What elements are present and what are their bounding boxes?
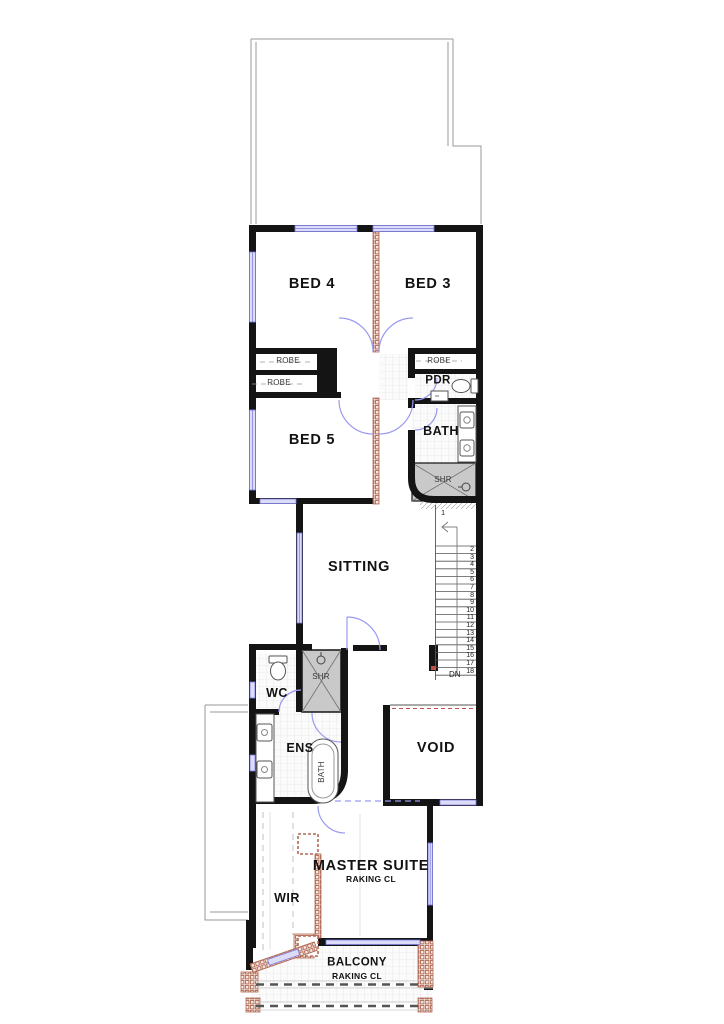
stair-step-label: 9 (452, 599, 474, 606)
room-label-shr-bath: SHR (434, 476, 452, 484)
label-master-raking-cl: RAKING CL (346, 875, 396, 884)
stair-step-1: 1 (441, 509, 445, 517)
room-label-bed4: BED 4 (289, 277, 335, 292)
stair-step-label: 11 (452, 614, 474, 621)
room-label-wir: WIR (274, 892, 300, 905)
stair-step-label: 5 (452, 569, 474, 576)
room-label-robe-c: ROBE (427, 357, 450, 365)
room-label-wc: WC (266, 687, 288, 700)
stair-step-label: 16 (452, 652, 474, 659)
stair-step-label: 3 (452, 554, 474, 561)
room-label-balcony: BALCONY (327, 957, 387, 969)
fixture-label-bath-tub: BATH (318, 761, 326, 783)
stair-step-label: 14 (452, 637, 474, 644)
label-balcony-raking-cl: RAKING CL (332, 972, 382, 981)
room-label-shr-ens: SHR (312, 673, 330, 681)
stair-step-label: 2 (452, 546, 474, 553)
room-label-robe-a: ROBE (276, 357, 299, 365)
stair-step-label: 8 (452, 592, 474, 599)
room-label-ens: ENS (286, 742, 313, 755)
room-label-bed3: BED 3 (405, 277, 451, 292)
floor-plan-page: BED 4 BED 3 ROBE ROBE ROBE PDR BED 5 BAT… (0, 0, 724, 1024)
stair-step-label: 10 (452, 607, 474, 614)
room-label-bed5: BED 5 (289, 433, 335, 448)
stair-down-label: DN (449, 671, 461, 679)
stair-step-label: 7 (452, 584, 474, 591)
room-label-sitting: SITTING (328, 560, 390, 575)
room-label-master-suite: MASTER SUITE (313, 859, 429, 874)
stair-step-label: 15 (452, 645, 474, 652)
stair-step-label: 12 (452, 622, 474, 629)
room-label-bath: BATH (423, 425, 459, 438)
room-label-pdr: PDR (425, 375, 450, 387)
room-label-void: VOID (417, 741, 455, 756)
stair-step-label: 17 (452, 660, 474, 667)
stair-step-label: 4 (452, 561, 474, 568)
stair-step-label: 6 (452, 576, 474, 583)
room-label-robe-b: ROBE (267, 379, 290, 387)
stair-step-label: 13 (452, 630, 474, 637)
labels-layer: BED 4 BED 3 ROBE ROBE ROBE PDR BED 5 BAT… (0, 0, 724, 1024)
